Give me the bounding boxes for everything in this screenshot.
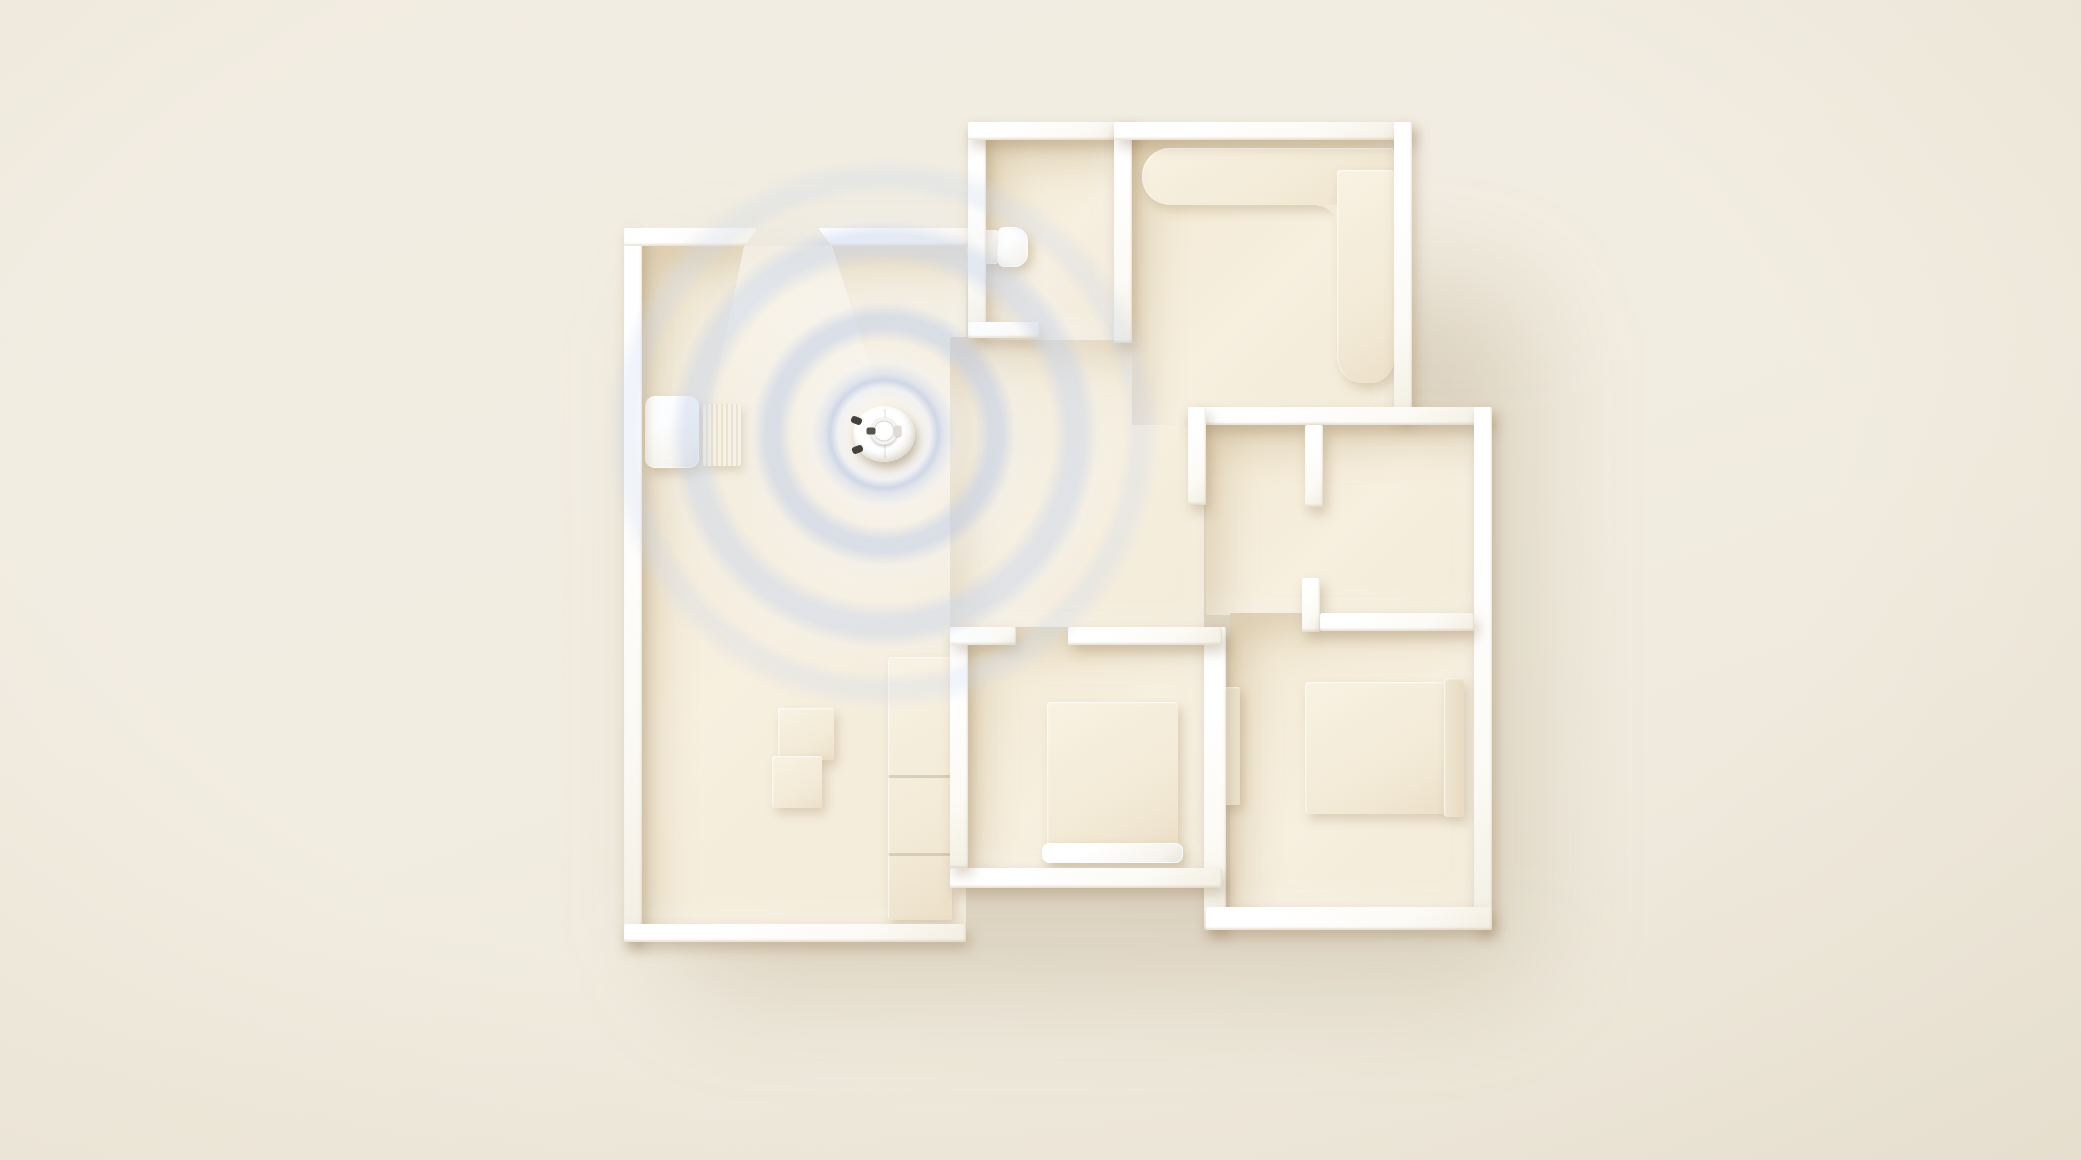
floor-study-nook: [1206, 425, 1474, 615]
bed-small-footboard: [1042, 843, 1183, 863]
robot-lidar-window-icon: [866, 427, 875, 434]
wall-kitchen-right: [1394, 122, 1412, 418]
coffee-table-small: [772, 756, 822, 808]
wall-bedroom-small-top-left: [950, 627, 1016, 645]
wall-bedroom-corner-bottom: [1206, 907, 1492, 930]
wall-living-top-right: [818, 228, 986, 246]
wall-living-left: [624, 228, 642, 942]
wall-bathroom-left: [968, 122, 986, 337]
bed-small: [1047, 702, 1178, 845]
wall-outer-right: [1474, 407, 1492, 930]
robot-vacuum: [853, 406, 915, 462]
wall-mid-top: [1188, 407, 1490, 425]
kitchen-counter-side: [1337, 170, 1394, 383]
charging-dock-ramp: [703, 404, 741, 466]
charging-dock-base: [645, 396, 699, 468]
wall-kitchen-top: [1114, 122, 1412, 140]
bed-corner: [1305, 682, 1446, 814]
wall-bathroom-kitchen-divider: [1114, 122, 1132, 343]
floor-plan-scene: [0, 0, 2081, 1160]
wall-living-top-left: [624, 228, 758, 246]
wall-living-bottom: [624, 924, 966, 942]
wall-bathroom-bottom: [968, 322, 1040, 338]
living-cabinet: [888, 657, 952, 920]
coffee-table-large: [778, 708, 834, 760]
wall-bedroom-small-top-right: [1068, 627, 1222, 645]
wall-bedroom-small-bottom: [950, 868, 1222, 888]
wall-closet-stub-left: [1188, 407, 1206, 505]
toilet-bowl: [998, 227, 1028, 267]
wall-nook: [1320, 613, 1474, 631]
bed-corner-headboard: [1444, 678, 1464, 817]
robot-camera-nub-icon: [895, 425, 902, 436]
wall-closet-stub-right: [1305, 425, 1323, 507]
kitchen-counter-fillet: [1317, 205, 1337, 225]
wall-nook-stub: [1302, 578, 1320, 632]
wall-bedroom-small-left: [950, 627, 968, 868]
wall-bathroom-top: [968, 122, 1132, 140]
